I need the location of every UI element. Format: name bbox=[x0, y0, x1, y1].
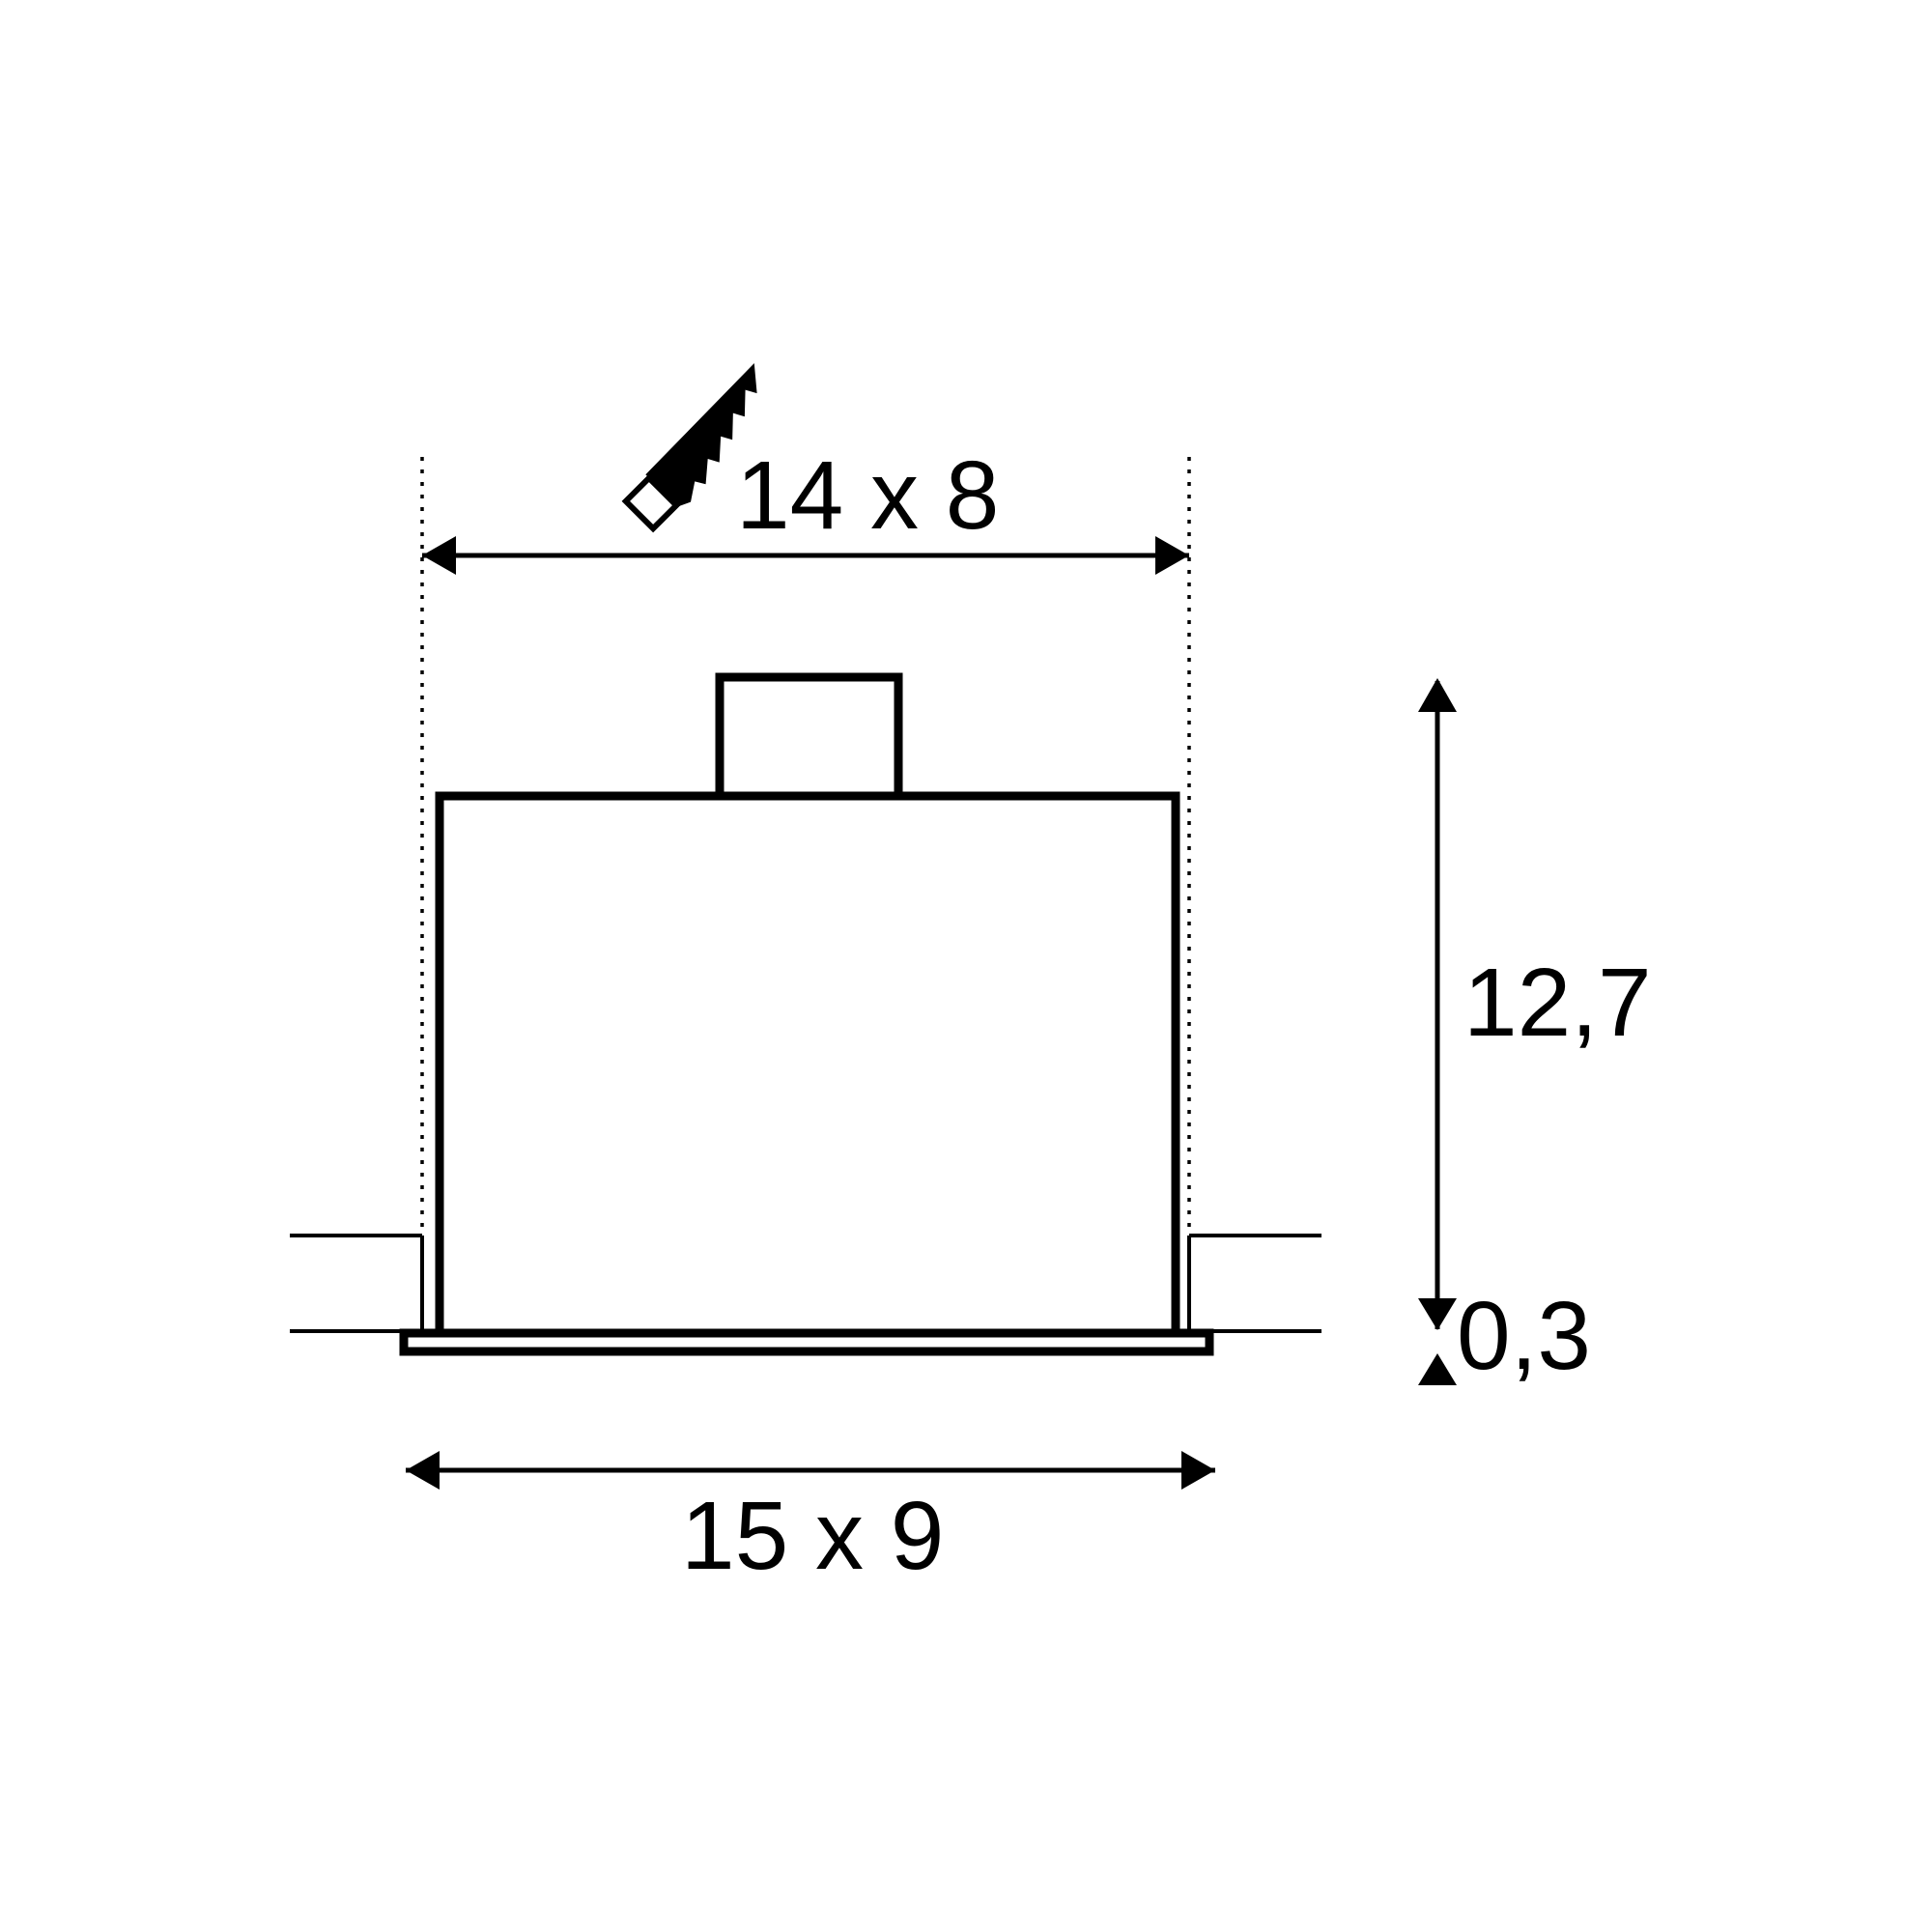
drawing-canvas: 14 x 8 12,7 0,3 15 x 9 bbox=[0, 0, 1932, 1932]
cutout-dimension-arrowhead-left bbox=[422, 536, 456, 575]
recess-depth-label: 12,7 bbox=[1463, 954, 1652, 1051]
outer-dimension-arrowhead-left bbox=[406, 1451, 440, 1490]
junction-box bbox=[720, 677, 898, 796]
flange-thickness-label: 0,3 bbox=[1457, 1288, 1591, 1384]
cutout-size-label: 14 x 8 bbox=[736, 447, 999, 544]
cutout-dimension-arrowhead-right bbox=[1155, 536, 1189, 575]
luminaire-housing bbox=[440, 796, 1176, 1335]
depth-dimension-arrowhead-top bbox=[1418, 678, 1457, 712]
flange-thickness-arrowhead-up bbox=[1418, 1353, 1457, 1385]
depth-dimension-arrowhead-bottom bbox=[1418, 1298, 1457, 1330]
outer-dimension-arrowhead-right bbox=[1181, 1451, 1215, 1490]
outer-size-label: 15 x 9 bbox=[681, 1488, 944, 1584]
trim-flange bbox=[404, 1333, 1209, 1351]
